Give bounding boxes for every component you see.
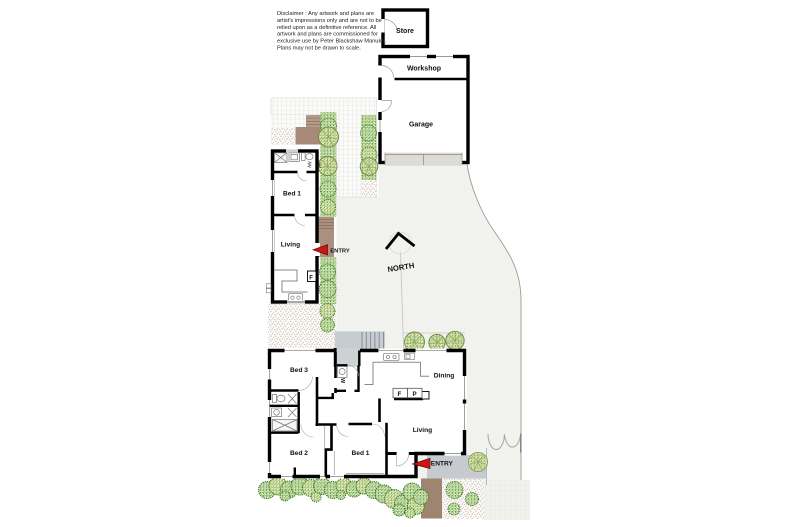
svg-text:Store: Store xyxy=(396,28,414,35)
svg-text:Workshop: Workshop xyxy=(407,66,441,73)
svg-text:Living: Living xyxy=(281,242,300,249)
svg-text:ENTRY: ENTRY xyxy=(431,460,454,467)
svg-text:Bed 3: Bed 3 xyxy=(290,367,308,374)
svg-text:exclusive use by Peter Blacksh: exclusive use by Peter Blackshaw Manuka. xyxy=(277,39,386,45)
svg-text:artwork and plans are commissi: artwork and plans are commissioned for xyxy=(277,32,378,38)
svg-text:ENTRY: ENTRY xyxy=(330,248,350,254)
svg-text:artist's impressions only and: artist's impressions only and are not to… xyxy=(277,18,382,24)
svg-text:Bed 1: Bed 1 xyxy=(283,191,301,198)
svg-text:Garage: Garage xyxy=(409,122,433,129)
svg-text:F: F xyxy=(309,276,313,282)
svg-text:F: F xyxy=(398,391,402,398)
svg-text:Disclaimer : Any artwork and p: Disclaimer : Any artwork and plans are xyxy=(277,11,374,17)
svg-text:relied upon as a definitive re: relied upon as a definitive reference. A… xyxy=(277,25,376,31)
svg-text:Bed 2: Bed 2 xyxy=(290,450,308,457)
svg-text:Bed 1: Bed 1 xyxy=(352,450,370,457)
svg-text:Living: Living xyxy=(413,427,432,434)
svg-text:Plans may not be drawn to scal: Plans may not be drawn to scale. xyxy=(277,46,361,52)
svg-text:Dining: Dining xyxy=(434,373,455,380)
svg-text:P: P xyxy=(413,391,417,398)
